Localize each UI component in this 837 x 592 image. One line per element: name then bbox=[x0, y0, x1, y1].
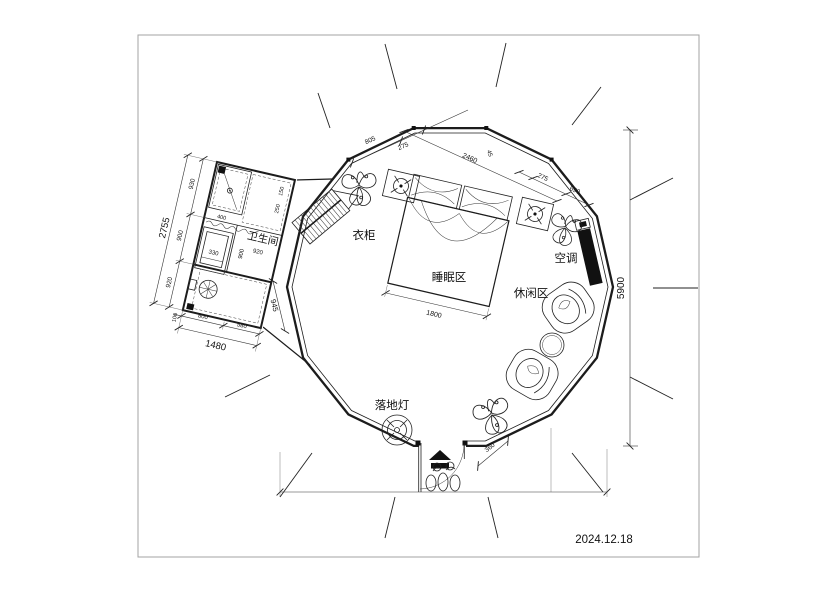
air-conditioner-label: 空调 bbox=[555, 251, 578, 265]
svg-text:5900: 5900 bbox=[616, 276, 627, 299]
sleeping-area-label: 睡眠区 bbox=[432, 271, 467, 284]
floor-lamp-label: 落地灯 bbox=[375, 399, 410, 412]
floor-plan-drawing: 1800 睡眠区 衣柜 空调 休闲区 bbox=[0, 0, 837, 592]
floor-plan-page: 1800 睡眠区 衣柜 空调 休闲区 bbox=[0, 0, 837, 592]
leisure-area-label: 休闲区 bbox=[514, 286, 549, 300]
wardrobe-label: 衣柜 bbox=[353, 228, 376, 242]
date-stamp: 2024.12.18 bbox=[575, 534, 633, 546]
